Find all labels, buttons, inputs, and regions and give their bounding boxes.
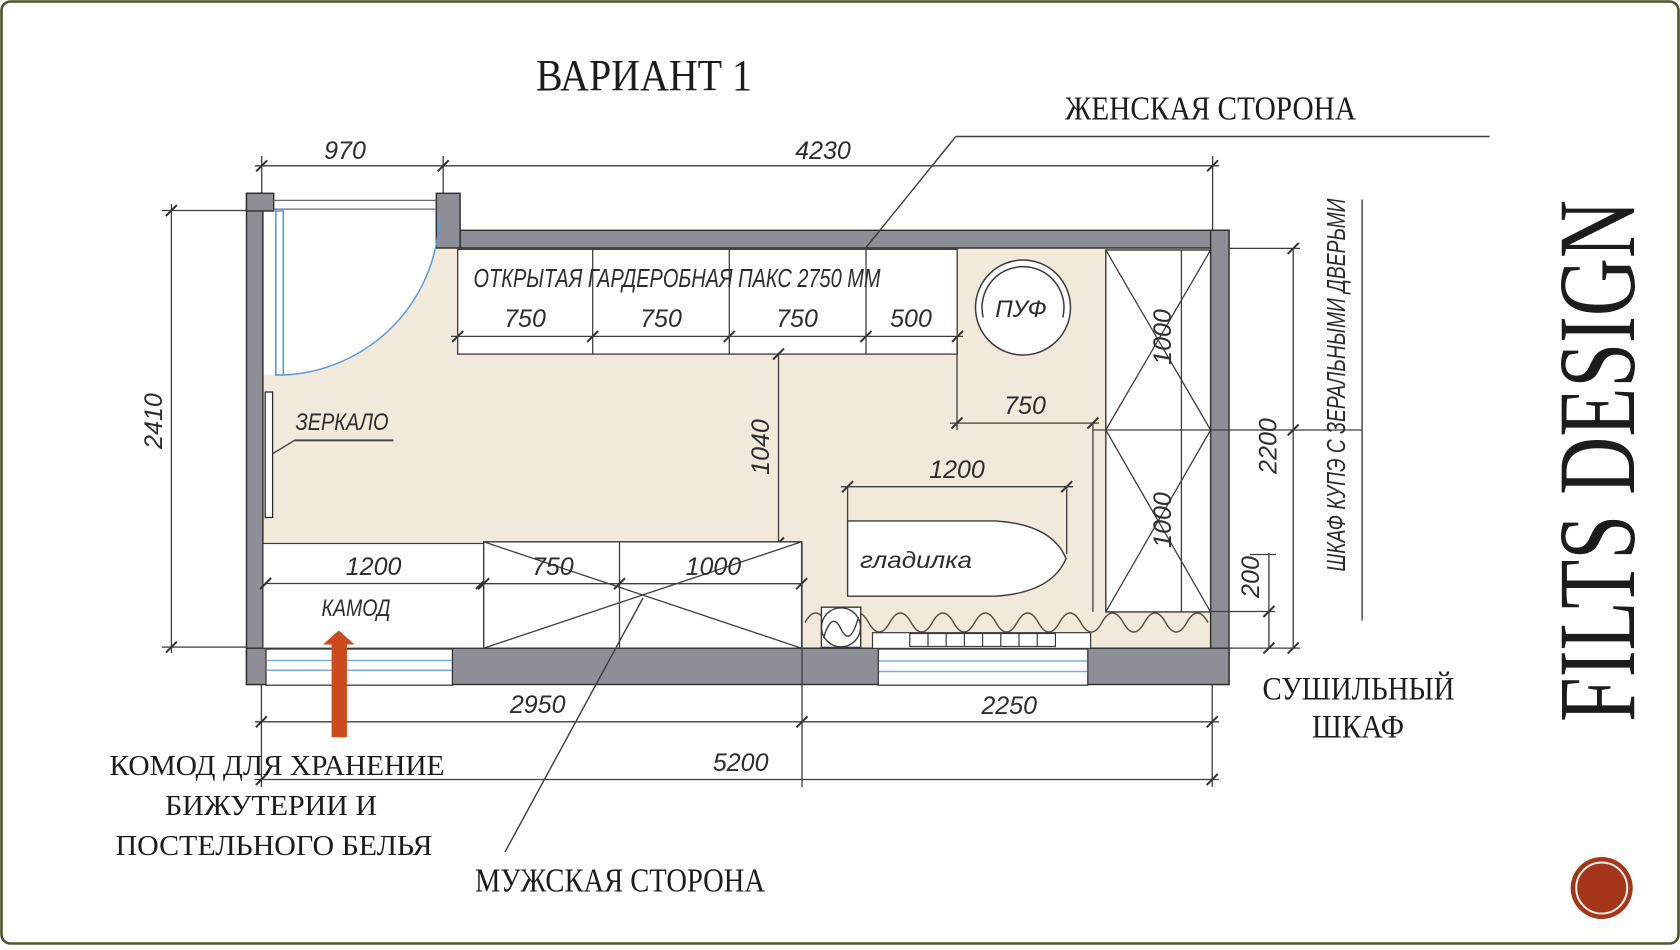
svg-text:гладилка: гладилка bbox=[860, 547, 972, 573]
svg-text:1200: 1200 bbox=[346, 553, 402, 581]
svg-text:2200: 2200 bbox=[1255, 418, 1283, 475]
svg-text:1000: 1000 bbox=[1149, 309, 1177, 365]
svg-text:970: 970 bbox=[324, 137, 366, 165]
svg-text:БИЖУТЕРИИ И: БИЖУТЕРИИ И bbox=[165, 790, 377, 822]
svg-text:КОМОД ДЛЯ ХРАНЕНИЕ: КОМОД ДЛЯ ХРАНЕНИЕ bbox=[110, 750, 445, 782]
svg-text:4230: 4230 bbox=[795, 137, 851, 165]
svg-text:750: 750 bbox=[1004, 392, 1046, 420]
svg-text:ПУФ: ПУФ bbox=[995, 296, 1047, 323]
svg-text:750: 750 bbox=[640, 305, 682, 333]
svg-text:500: 500 bbox=[890, 305, 932, 333]
svg-text:ОТКРЫТАЯ ГАРДЕРОБНАЯ ПАКС 2750: ОТКРЫТАЯ ГАРДЕРОБНАЯ ПАКС 2750 ММ bbox=[474, 263, 881, 293]
svg-text:750: 750 bbox=[532, 553, 574, 581]
svg-text:СУШИЛЬНЫЙ: СУШИЛЬНЫЙ bbox=[1263, 671, 1455, 708]
svg-text:5200: 5200 bbox=[713, 749, 769, 777]
svg-text:КАМОД: КАМОД bbox=[322, 595, 391, 622]
svg-text:1040: 1040 bbox=[747, 419, 775, 475]
svg-text:2250: 2250 bbox=[980, 692, 1037, 720]
svg-text:FILTS DESIGN: FILTS DESIGN bbox=[1536, 200, 1658, 722]
svg-text:ШКАФ: ШКАФ bbox=[1312, 710, 1404, 746]
svg-text:ЖЕНСКАЯ СТОРОНА: ЖЕНСКАЯ СТОРОНА bbox=[1065, 91, 1356, 128]
svg-text:1000: 1000 bbox=[1149, 492, 1177, 548]
svg-text:1000: 1000 bbox=[686, 553, 742, 581]
svg-text:2410: 2410 bbox=[140, 393, 168, 450]
svg-text:ШКАФ КУПЭ С ЗЕРАЛЬНЫМИ ДВЕРЬМИ: ШКАФ КУПЭ С ЗЕРАЛЬНЫМИ ДВЕРЬМИ bbox=[1321, 198, 1351, 571]
svg-text:ПОСТЕЛЬНОГО БЕЛЬЯ: ПОСТЕЛЬНОГО БЕЛЬЯ bbox=[116, 830, 433, 862]
svg-text:2950: 2950 bbox=[509, 691, 566, 719]
svg-text:ЗЕРКАЛО: ЗЕРКАЛО bbox=[296, 409, 389, 436]
svg-text:1200: 1200 bbox=[929, 456, 985, 484]
svg-text:750: 750 bbox=[504, 305, 546, 333]
svg-text:ВАРИАНТ 1: ВАРИАНТ 1 bbox=[536, 51, 752, 100]
svg-text:МУЖСКАЯ СТОРОНА: МУЖСКАЯ СТОРОНА bbox=[475, 863, 765, 900]
svg-text:750: 750 bbox=[776, 305, 818, 333]
svg-text:200: 200 bbox=[1237, 556, 1265, 599]
